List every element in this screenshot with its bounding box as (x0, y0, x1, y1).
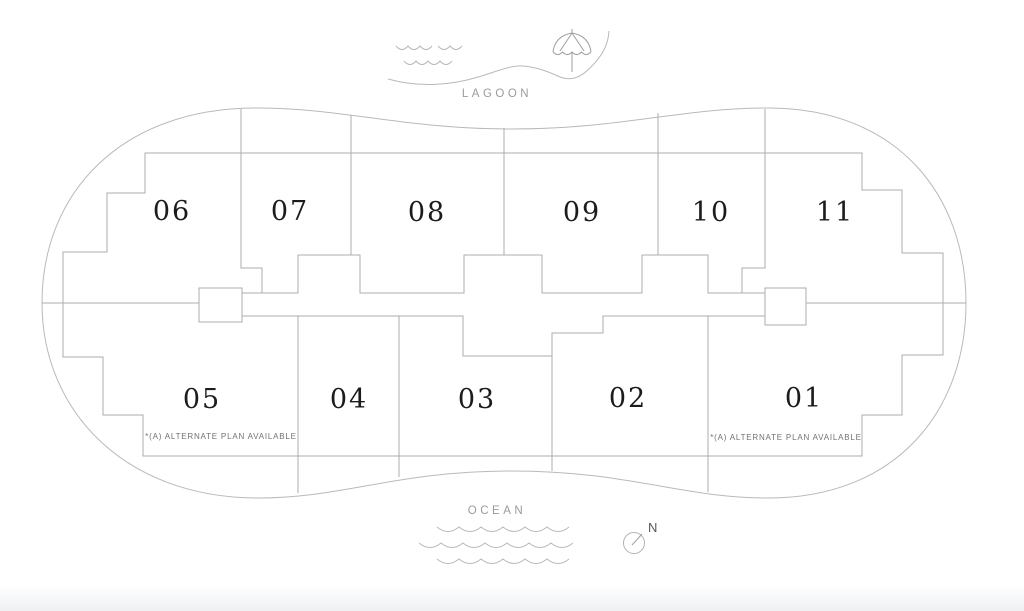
unit-label-07[interactable]: 07 (245, 197, 335, 227)
unit-label-03[interactable]: 03 (432, 385, 522, 415)
unit-label-11[interactable]: 11 (790, 198, 880, 228)
alternate-plan-note-05: *(A) ALTERNATE PLAN AVAILABLE (101, 432, 341, 441)
unit-label-06[interactable]: 06 (127, 197, 217, 227)
lagoon-waves-icon (396, 46, 462, 65)
compass-icon (624, 533, 645, 554)
unit-label-09[interactable]: 09 (537, 198, 627, 228)
page-bottom-fade (0, 585, 1024, 611)
elevator-core-west (199, 288, 242, 322)
alternate-plan-note-01: *(A) ALTERNATE PLAN AVAILABLE (666, 433, 906, 442)
unit-label-10[interactable]: 10 (666, 198, 756, 228)
ocean-waves-icon (419, 527, 573, 564)
lagoon-label: LAGOON (427, 88, 567, 100)
keyplan-diagram: LAGOON OCEAN N 06 07 08 09 10 11 05 04 0… (0, 0, 1024, 611)
unit-label-05[interactable]: 05 (157, 385, 247, 415)
compass-north-label: N (648, 520, 658, 535)
unit-label-02[interactable]: 02 (583, 384, 673, 414)
unit-label-01[interactable]: 01 (759, 384, 849, 414)
elevator-core-east (765, 288, 806, 325)
ocean-label: OCEAN (427, 505, 567, 517)
unit-label-04[interactable]: 04 (304, 385, 394, 415)
unit-label-08[interactable]: 08 (382, 198, 472, 228)
umbrella-icon (553, 29, 591, 72)
corridor (42, 255, 966, 356)
